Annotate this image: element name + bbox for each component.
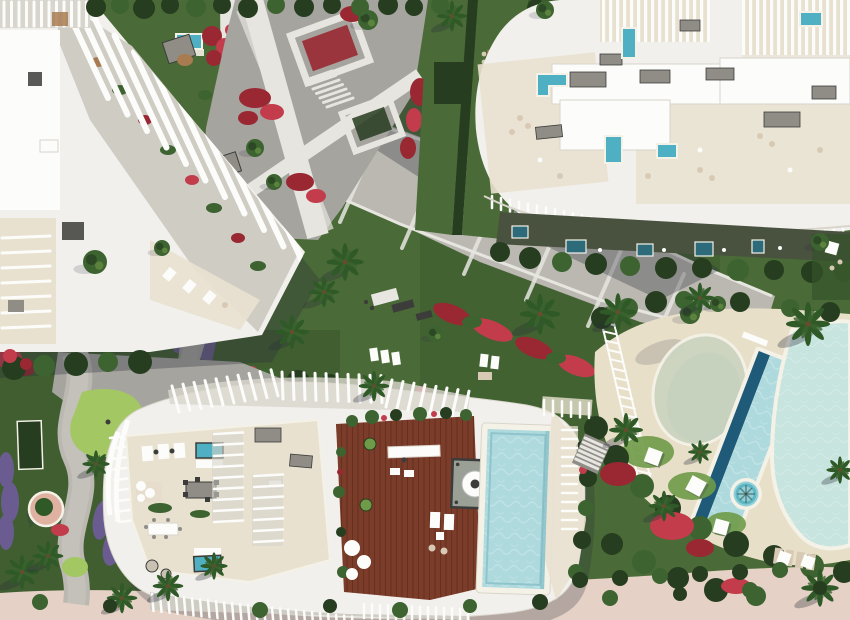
lounger [158, 444, 170, 460]
skylight [40, 140, 58, 152]
rooftop-pool-2 [605, 136, 622, 163]
lounger [142, 446, 154, 462]
pouf [429, 545, 436, 552]
main-freeform-pool [772, 321, 850, 548]
petanque-court [17, 421, 43, 470]
pouf [441, 548, 448, 555]
rooftop-pool-4 [622, 28, 636, 58]
building-a-left-terraces [0, 218, 56, 344]
putting-green-2 [62, 557, 88, 577]
dining-table-white [148, 523, 178, 535]
dining-table-gray [186, 482, 216, 498]
round-bush [364, 438, 376, 450]
deck-sofa [357, 555, 371, 569]
lounger [444, 514, 455, 530]
lounger [404, 470, 414, 477]
penthouse-roof-building [103, 370, 597, 620]
planter [148, 503, 172, 513]
spa-pool [730, 478, 762, 510]
rooftop-pool-5 [800, 12, 822, 26]
round-chair [146, 560, 158, 572]
pool-ledge-2 [194, 548, 221, 555]
lounger [174, 443, 186, 459]
hedge-square [434, 62, 464, 104]
side-table [436, 532, 444, 540]
terrace-box [8, 300, 24, 312]
roof-box-2 [62, 222, 84, 240]
wood-pergola [52, 12, 68, 26]
lounger [390, 468, 400, 475]
aerial-render [0, 0, 850, 620]
deck-bar-counter [388, 445, 440, 458]
lounger [430, 512, 441, 528]
planter [190, 510, 210, 518]
deck-sofa [344, 540, 360, 556]
golf-hole [106, 420, 111, 425]
roof-deck-pool [476, 423, 556, 595]
roof-box-1 [28, 72, 42, 86]
roof-box [290, 454, 313, 468]
deck-sofa [346, 568, 358, 580]
round-bush [360, 499, 372, 511]
slat-pergola-2 [742, 0, 850, 55]
roof-box [255, 428, 281, 442]
rooftop-pool-3 [657, 144, 677, 158]
